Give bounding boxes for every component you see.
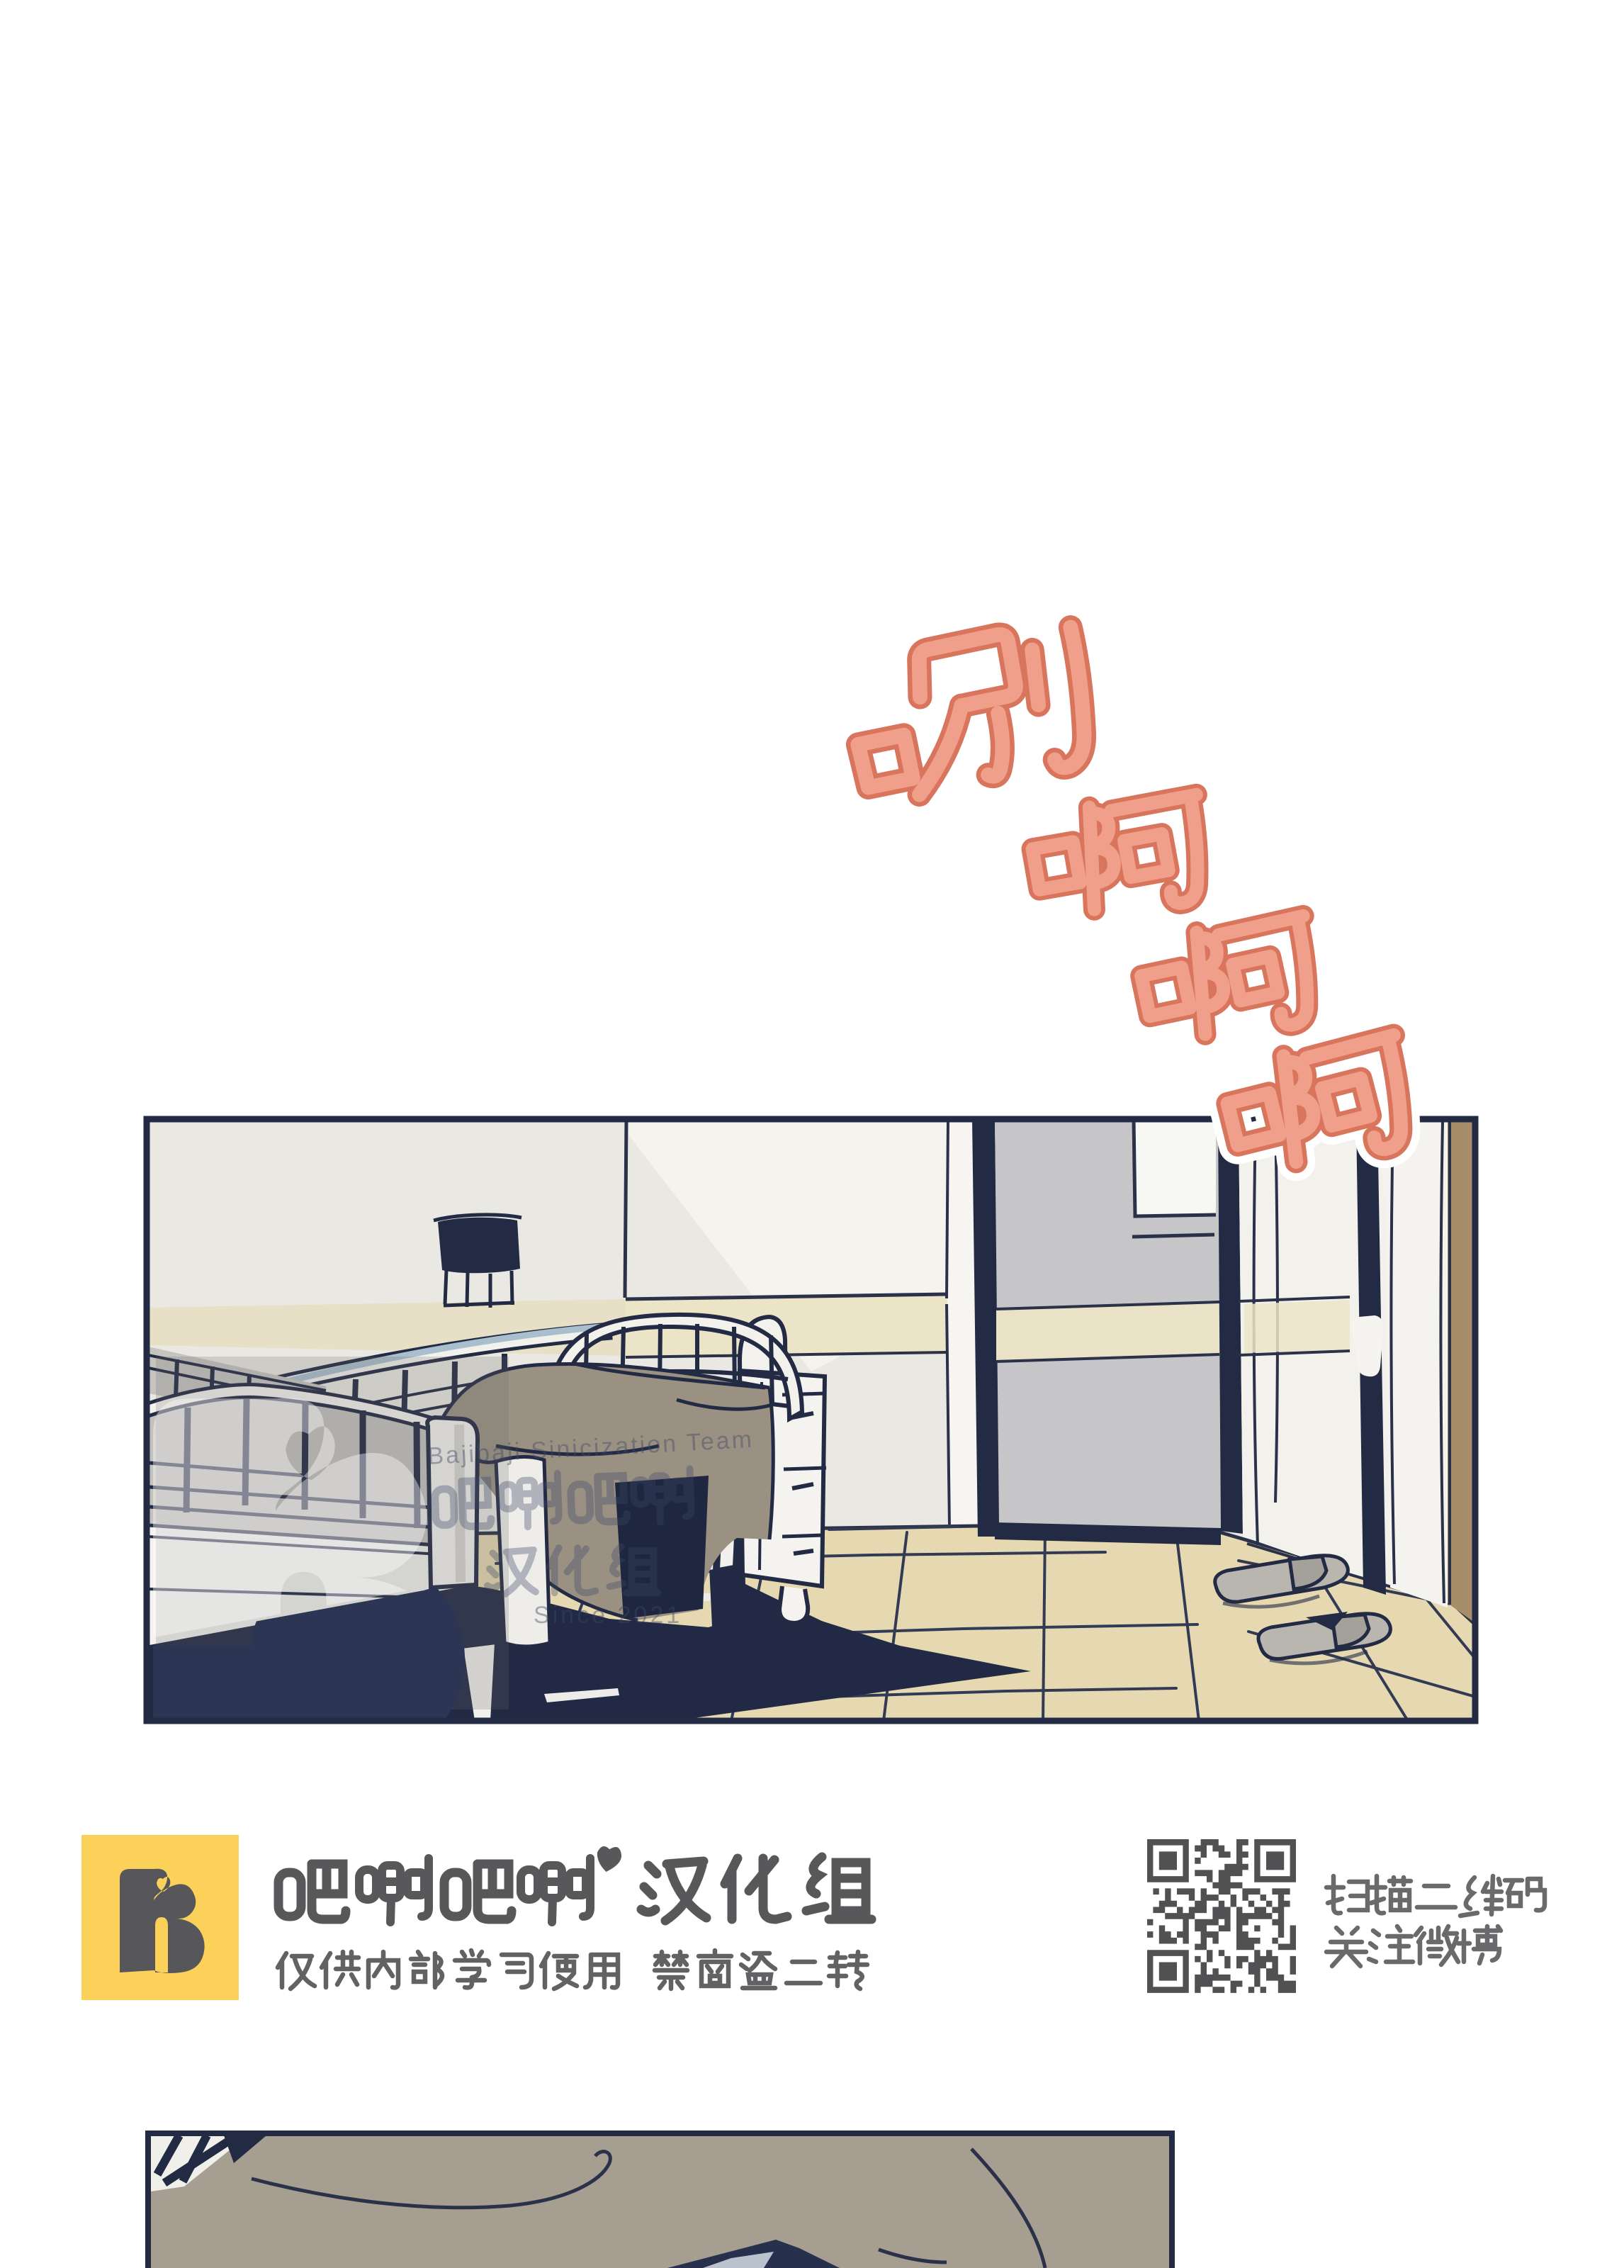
svg-text:Since 2021: Since 2021 — [534, 1602, 682, 1629]
